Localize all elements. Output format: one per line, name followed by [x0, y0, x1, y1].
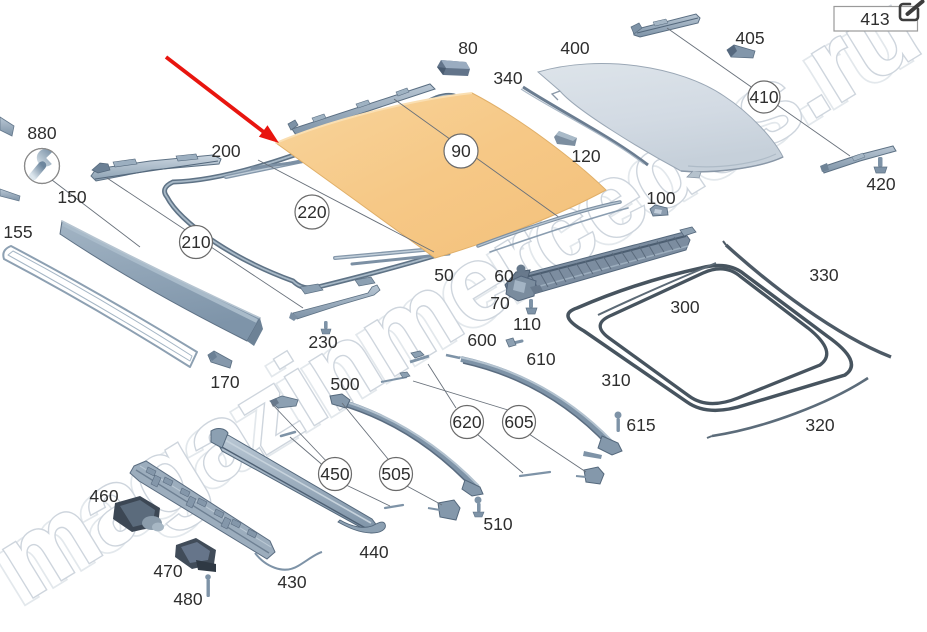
- svg-text:400: 400: [560, 38, 589, 58]
- svg-text:340: 340: [493, 68, 522, 88]
- svg-text:155: 155: [3, 222, 32, 242]
- svg-text:620: 620: [452, 412, 481, 432]
- svg-text:80: 80: [458, 38, 478, 58]
- svg-text:420: 420: [866, 174, 895, 194]
- svg-text:450: 450: [320, 464, 349, 484]
- svg-text:880: 880: [27, 123, 56, 143]
- svg-text:300: 300: [670, 297, 699, 317]
- svg-text:200: 200: [211, 141, 240, 161]
- svg-text:210: 210: [181, 232, 210, 252]
- svg-text:320: 320: [805, 415, 834, 435]
- svg-text:60: 60: [494, 266, 514, 286]
- svg-text:405: 405: [735, 28, 764, 48]
- svg-text:230: 230: [308, 332, 337, 352]
- svg-text:610: 610: [526, 349, 555, 369]
- svg-text:615: 615: [626, 415, 655, 435]
- svg-text:220: 220: [297, 202, 326, 222]
- svg-text:500: 500: [330, 374, 359, 394]
- svg-text:505: 505: [381, 464, 410, 484]
- svg-text:100: 100: [646, 188, 675, 208]
- svg-text:90: 90: [451, 141, 471, 161]
- svg-text:310: 310: [601, 370, 630, 390]
- svg-text:110: 110: [513, 314, 541, 334]
- svg-text:70: 70: [490, 293, 510, 313]
- svg-text:413: 413: [860, 9, 889, 29]
- svg-text:410: 410: [749, 87, 778, 107]
- svg-text:460: 460: [89, 486, 118, 506]
- svg-text:150: 150: [57, 187, 86, 207]
- svg-text:600: 600: [467, 330, 496, 350]
- svg-text:440: 440: [359, 542, 388, 562]
- svg-text:510: 510: [483, 514, 512, 534]
- svg-text:120: 120: [571, 146, 600, 166]
- svg-text:430: 430: [277, 572, 306, 592]
- svg-text:170: 170: [210, 372, 239, 392]
- svg-text:50: 50: [434, 265, 454, 285]
- svg-text:480: 480: [173, 589, 202, 609]
- svg-text:470: 470: [153, 561, 182, 581]
- svg-text:330: 330: [809, 265, 838, 285]
- svg-text:605: 605: [504, 412, 533, 432]
